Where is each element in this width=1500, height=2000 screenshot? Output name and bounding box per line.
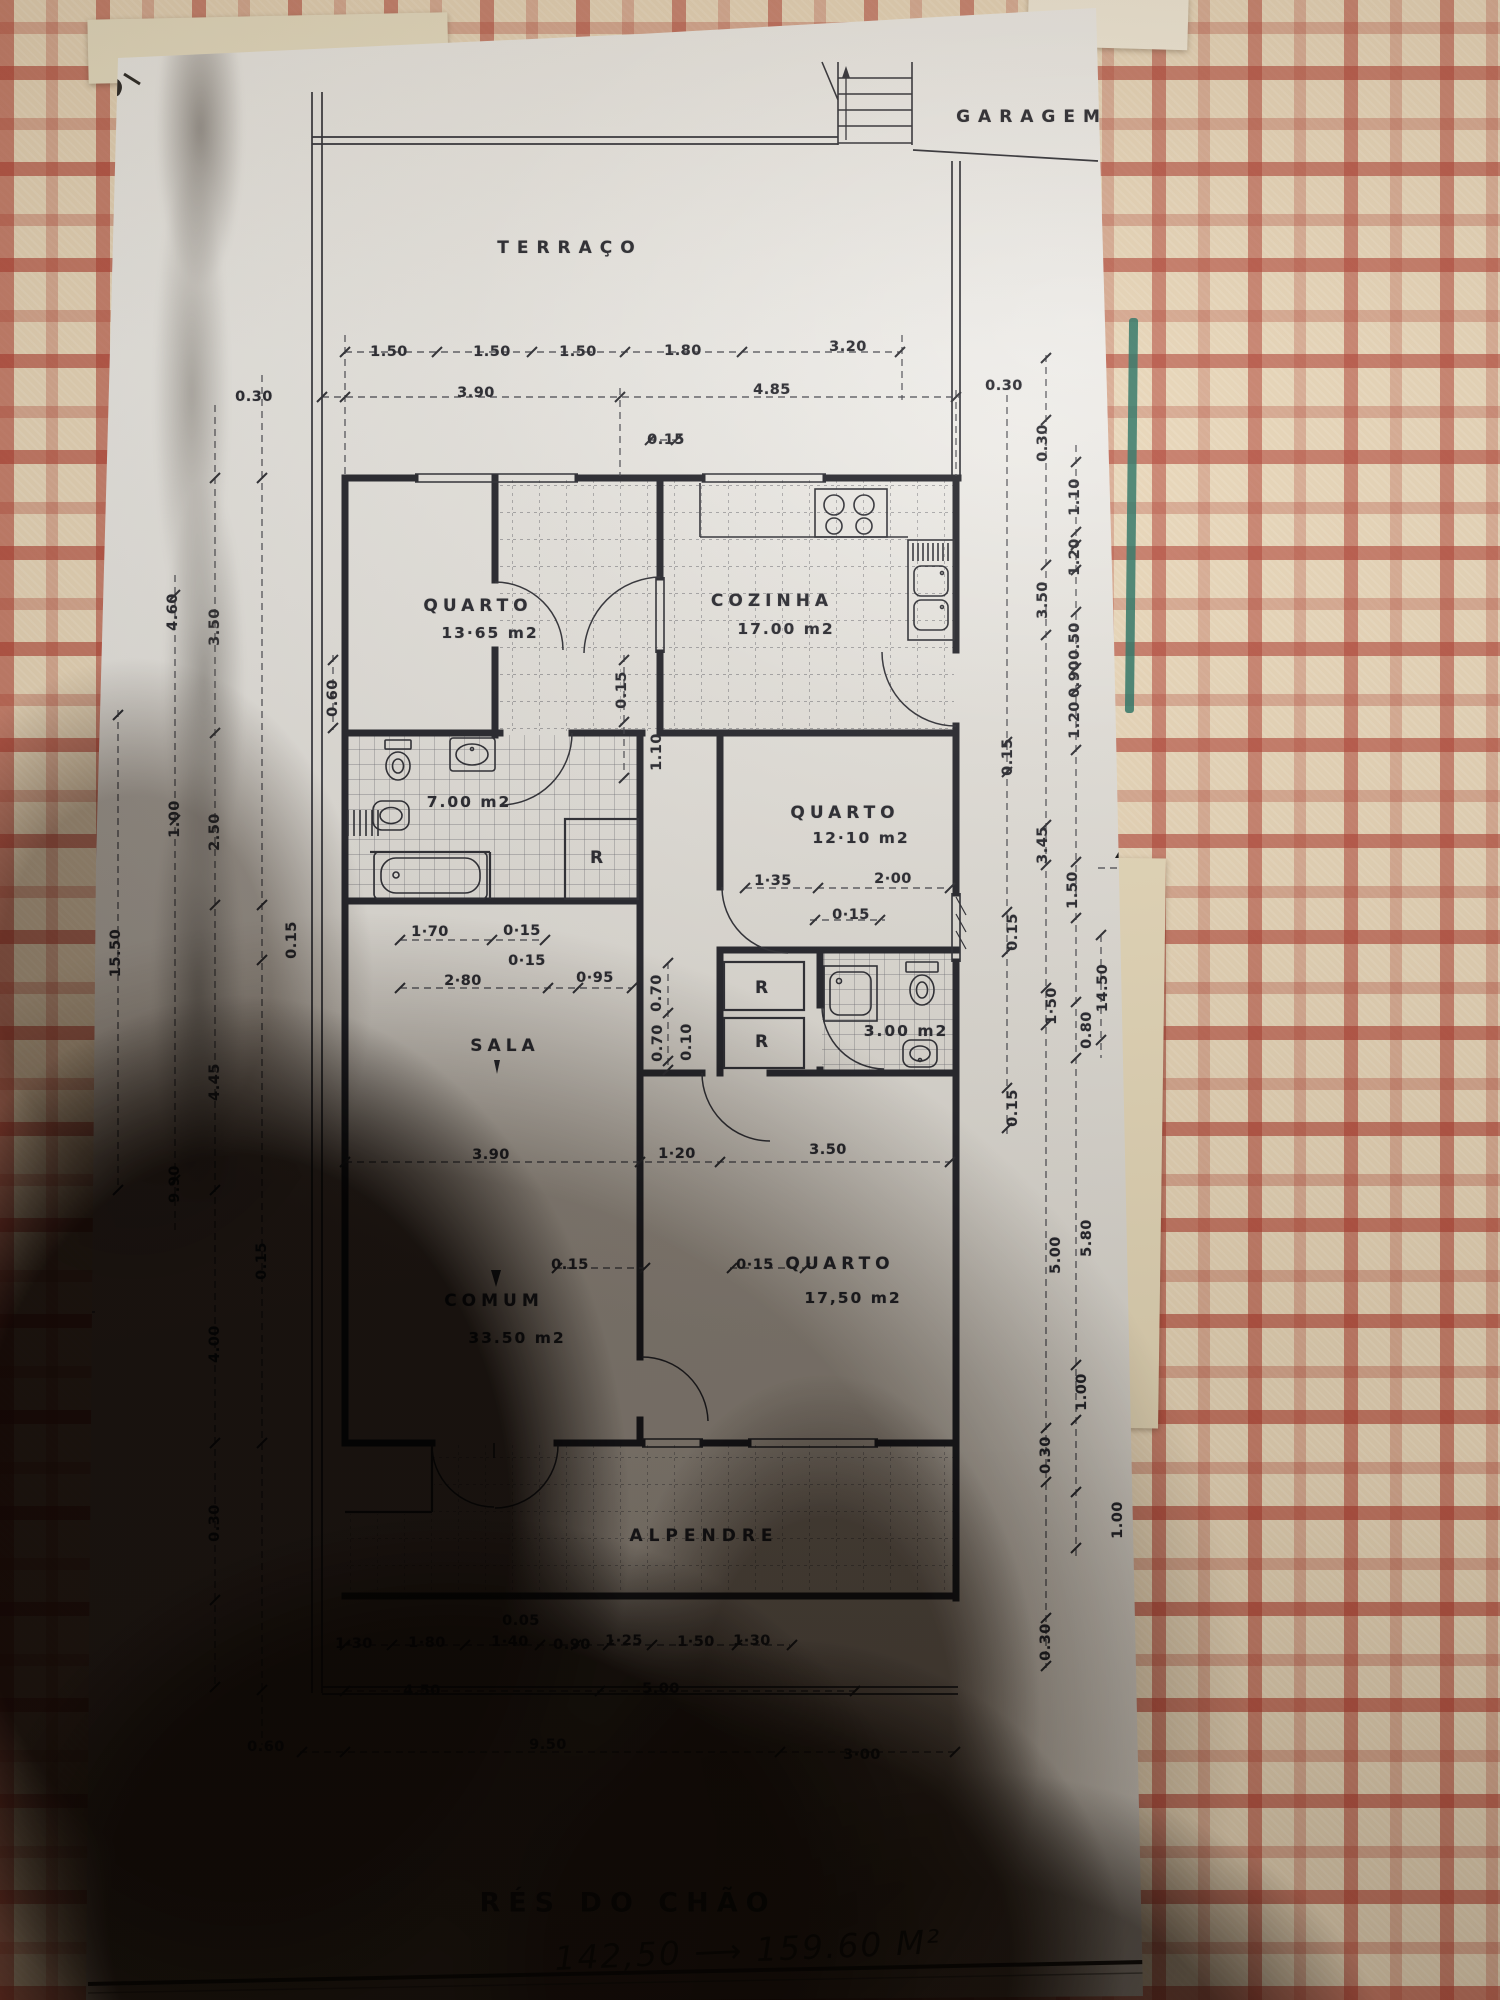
dim-label: 1·50 [1044, 987, 1060, 1025]
dim-label: 0.80 [1079, 1011, 1095, 1049]
dim-label: 1.50 [473, 344, 511, 360]
dim-label: 1.20 [1067, 538, 1083, 576]
garage-label: GARAGEM [956, 107, 1108, 127]
photo-of-floorplan: GARAGEMTERRAÇO1.501.501.501.803.200.303.… [0, 0, 1500, 2000]
room-area-comum: 33.50 m2 [468, 1329, 565, 1347]
dim-label: 5.00 [1048, 1236, 1064, 1274]
dim-label: 0.90 [553, 1637, 591, 1653]
dim-label: 0·15 [736, 1257, 774, 1273]
dim-label: 4.00 [207, 1325, 223, 1363]
partitions [345, 819, 804, 1512]
dim-label: 1·50 [677, 1634, 715, 1650]
dim-label: 1·30 [335, 1636, 373, 1652]
dim-label: 0.30 [207, 1504, 223, 1542]
dim-label: 3.20 [829, 339, 867, 355]
room-area-quarto-2: 12·10 m2 [812, 829, 909, 847]
dim-label: 3.45 [1035, 826, 1051, 864]
room-area-quarto-1: 13·65 m2 [441, 624, 538, 642]
dim-label: 0.10 [679, 1023, 695, 1061]
dim-label: 0.15 [614, 671, 630, 709]
dim-label: 3.90 [472, 1147, 510, 1163]
stairs-arrow [842, 66, 850, 78]
dim-label: 2·00 [874, 871, 912, 887]
room-label-quarto-3: QUARTO [785, 1254, 894, 1274]
dim-label: 0.15 [551, 1257, 589, 1273]
dim-label: 1.80 [664, 343, 702, 359]
room-area-wc: 3.00 m2 [864, 1022, 949, 1040]
dim-label: 0.50 [1067, 622, 1083, 660]
dim-label: 1.20 [1067, 701, 1083, 739]
dim-label: 0.70 [649, 974, 665, 1012]
dim-label: 0.15 [647, 432, 685, 448]
dim-label: 0·15 [832, 907, 870, 923]
dim-label: 0.60 [247, 1739, 285, 1755]
dim-label: 3.50 [1035, 581, 1051, 619]
dim-label: 0.30 [985, 378, 1023, 394]
closet-label-r3: R [755, 1032, 773, 1052]
dim-label: 15.50 [108, 929, 124, 977]
hatch-marks [956, 897, 966, 949]
dim-label: 9.50 [529, 1737, 567, 1753]
dim-label: 4.50 [403, 1683, 441, 1699]
dim-label: 1·25 [605, 1633, 643, 1649]
dim-label: 1·30 [733, 1633, 771, 1649]
room-area-cozinha: 17.00 m2 [737, 620, 834, 638]
dim-label: 14.50 [1095, 964, 1111, 1012]
dim-label: 0.70 [650, 1024, 666, 1062]
dim-label: 0.30 [1035, 424, 1051, 462]
dim-label: 1·70 [411, 924, 449, 940]
dim-label: 1.50 [370, 344, 408, 360]
closet-label-r1: R [590, 848, 608, 868]
dim-label: 4.85 [753, 382, 791, 398]
dim-label: 0·15 [508, 953, 546, 969]
room-label-cozinha: COZINHA [711, 591, 833, 611]
dim-label: 1·20 [658, 1146, 696, 1162]
room-area-quarto-3: 17,50 m2 [804, 1289, 901, 1307]
dim-label: 0.15 [1005, 913, 1021, 951]
sala-arrow [494, 1060, 500, 1074]
dim-label: 0.15 [1000, 738, 1016, 776]
dim-label: 1·35 [754, 873, 792, 889]
dim-label: 0.30 [1038, 1623, 1054, 1661]
stairs [822, 62, 912, 145]
porch-label: ALPENDRE [629, 1526, 778, 1546]
dim-label: 5.80 [1079, 1219, 1095, 1257]
dim-label: 1.10 [649, 733, 665, 771]
dim-label: 1.50 [559, 344, 597, 360]
dim-label: 3.90 [457, 385, 495, 401]
floor-title: RÉS DO CHÃO [479, 1888, 776, 1919]
room-area-banho: 7.00 m2 [427, 793, 512, 811]
dim-label: 5.00 [642, 1681, 680, 1697]
dim-label: 1.00 [1074, 1373, 1090, 1411]
dim-label: 3·00 [843, 1747, 881, 1763]
room-label-quarto-1: QUARTO [423, 596, 532, 616]
comum-arrow [491, 1270, 501, 1287]
dim-label: 1.00 [1110, 1501, 1126, 1539]
dim-label: 1.10 [1067, 478, 1083, 516]
room-label-quarto-2: QUARTO [790, 803, 899, 823]
closet-label-r2: R [755, 978, 773, 998]
room-label-sala: SALA [470, 1036, 539, 1056]
dim-label: 0.05 [502, 1613, 540, 1629]
dim-label: 0.30 [1038, 1436, 1054, 1474]
dim-label: 2·80 [444, 973, 482, 989]
terrace-label: TERRAÇO [497, 238, 642, 258]
dim-label: 0·95 [576, 970, 614, 986]
dim-label: 0.15 [254, 1242, 270, 1280]
dim-label: 0·15 [503, 923, 541, 939]
dim-label: 0.15 [284, 921, 300, 959]
dim-label: 1·40 [491, 1634, 529, 1650]
dim-label: 0.90 [1067, 660, 1083, 698]
dim-label: 1·80 [408, 1635, 446, 1651]
dim-label: 1.50 [1065, 871, 1081, 909]
dim-label: 3.50 [809, 1142, 847, 1158]
dim-label: 0.15 [1005, 1089, 1021, 1127]
photocopy-smudge [146, 48, 250, 1198]
dim-label: 0.60 [325, 679, 341, 717]
room-label-comum: COMUM [444, 1291, 544, 1311]
